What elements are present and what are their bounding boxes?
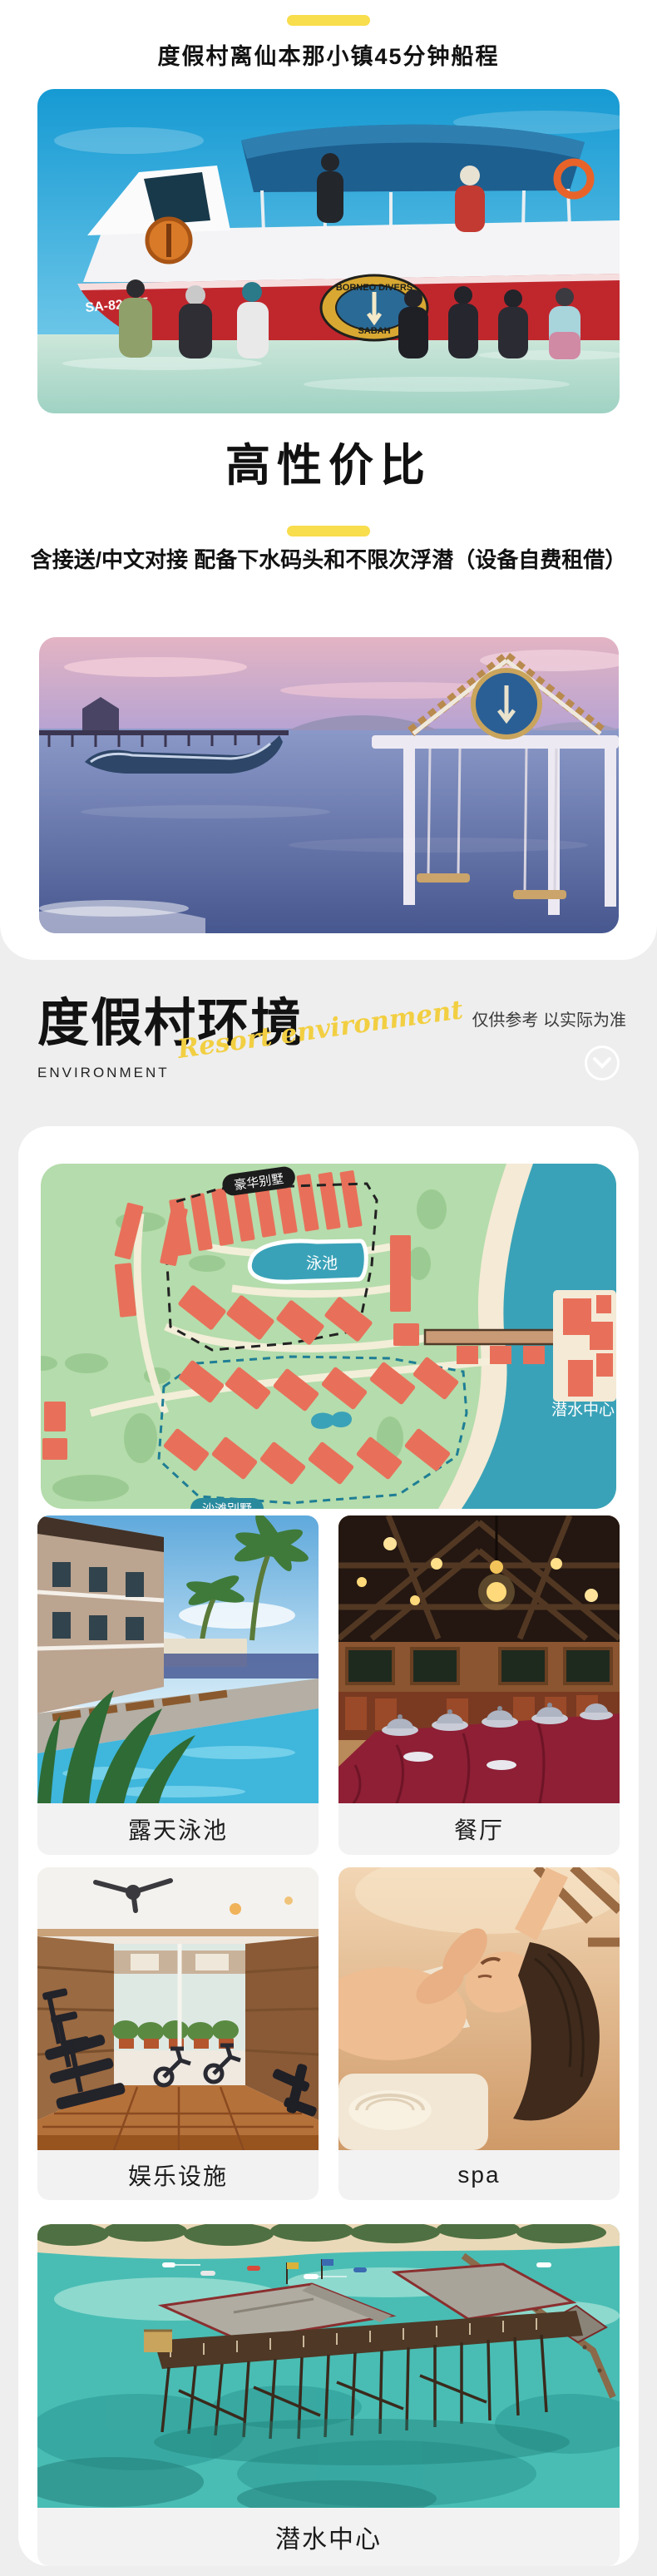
gallery-card-spa: spa (338, 1867, 620, 2200)
environment-card: 泳池 (18, 1126, 639, 2566)
swing-photo (39, 637, 619, 933)
spa-photo (338, 1867, 620, 2150)
gym-photo (37, 1867, 319, 2150)
photo-caption: 餐厅 (338, 1803, 620, 1855)
headline-value: 高性价比 (0, 443, 657, 488)
chevron-down-icon[interactable] (585, 1046, 620, 1080)
environment-section: 度假村环境 ENVIRONMENT Resort environment 仅供参… (0, 960, 657, 2576)
resort-map: 泳池 (41, 1164, 616, 1509)
boat-photo: SA-8296/5 BORNEO DIVERS SABAH (37, 89, 620, 413)
boat-logo-top-text: BORNEO DIVERS (336, 283, 412, 293)
restaurant-photo (338, 1515, 620, 1803)
map-label-dive-center: 潜水中心 (551, 1401, 615, 1419)
photo-caption: 潜水中心 (37, 2508, 620, 2566)
divider-pill (287, 526, 370, 536)
photo-caption: spa (338, 2150, 620, 2200)
divider-pill (287, 15, 370, 26)
gallery-card-pool: 露天泳池 (37, 1515, 319, 1855)
map-label-pool: 泳池 (306, 1254, 338, 1273)
photo-caption: 娱乐设施 (37, 2150, 319, 2200)
dive-center-photo (37, 2224, 620, 2508)
headline-inclusions: 含接送/中文对接 配备下水码头和不限次浮潜（设备自费租借） (0, 547, 657, 572)
disclaimer-text: 仅供参考 以实际为准 (472, 1006, 626, 1031)
gallery-card-restaurant: 餐厅 (338, 1515, 620, 1855)
boat-logo-bottom-text: SABAH (358, 326, 390, 336)
intro-section: 度假村离仙本那小镇45分钟船程 (0, 0, 657, 960)
map-label-beach-villa: 沙滩别墅 (202, 1502, 252, 1509)
section-subtitle-en: ENVIRONMENT (37, 1065, 620, 1081)
photo-caption: 露天泳池 (37, 1803, 319, 1855)
gallery-card-gym: 娱乐设施 (37, 1867, 319, 2200)
environment-header: 度假村环境 ENVIRONMENT Resort environment 仅供参… (0, 960, 657, 1126)
swing-photo-illustration (39, 637, 619, 933)
gallery-card-dive-center: 潜水中心 (37, 2224, 620, 2566)
headline-boat-transfer: 度假村离仙本那小镇45分钟船程 (0, 42, 657, 71)
pool-photo (37, 1515, 319, 1803)
boat-photo-illustration: SA-8296/5 BORNEO DIVERS SABAH (37, 89, 620, 413)
photo-gallery: 露天泳池 (37, 1515, 620, 2566)
